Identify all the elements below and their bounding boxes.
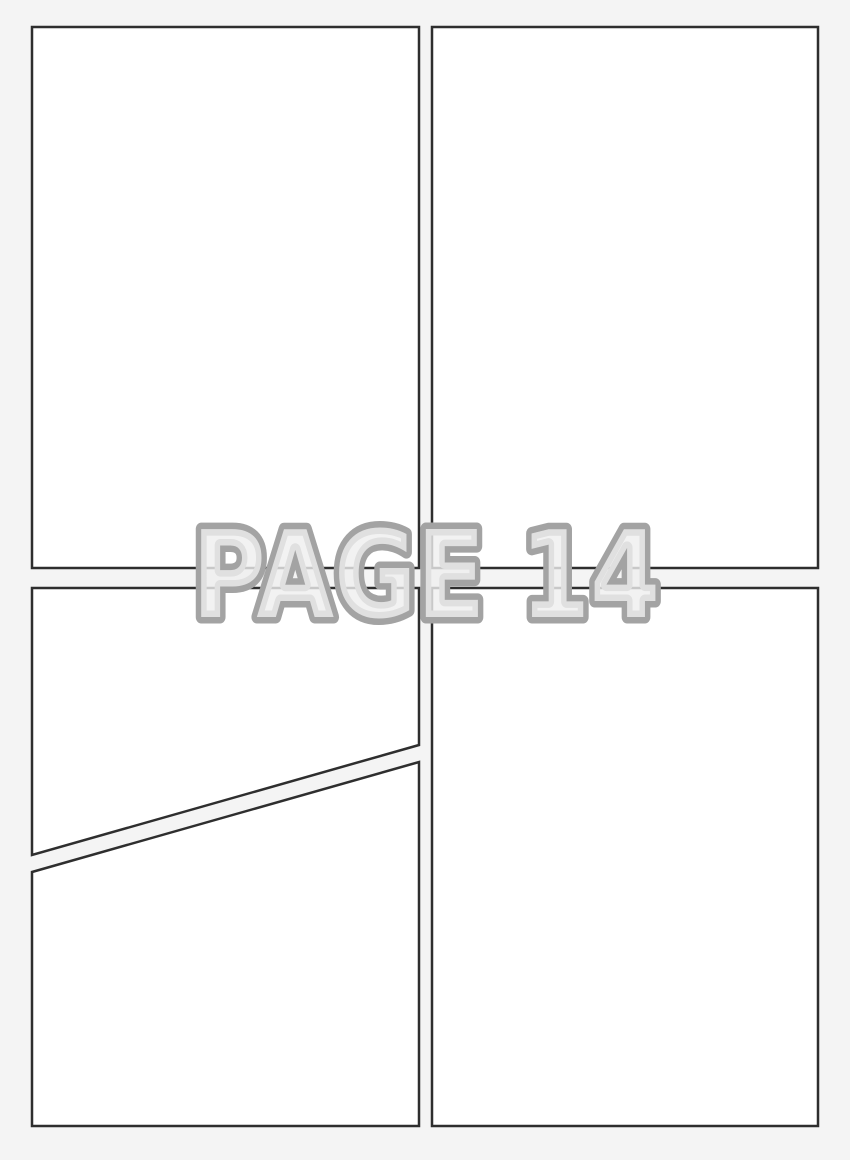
comic-page-template: PAGE 14 <box>0 0 850 1160</box>
panel-top-left <box>32 27 419 568</box>
page-number-watermark: PAGE 14 <box>192 507 660 646</box>
comic-page-layout: PAGE 14 <box>0 0 850 1160</box>
panel-bottom-right <box>432 588 818 1126</box>
panel-top-right <box>432 27 818 568</box>
